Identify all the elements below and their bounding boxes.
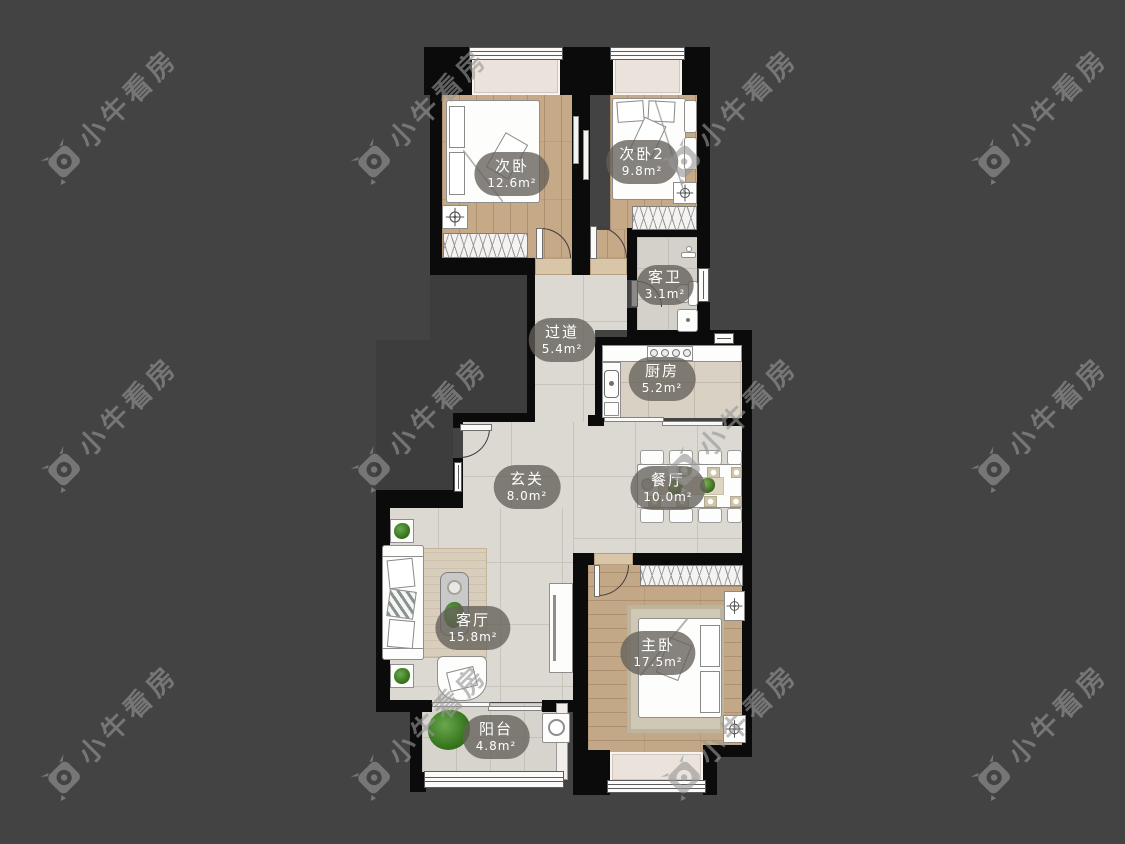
watermark-stamp: 小牛看房 — [36, 649, 194, 807]
kitchen-sliding-door-icon — [604, 417, 664, 422]
dining-chair — [698, 508, 722, 523]
door-threshold — [535, 258, 572, 275]
watermark-text: 小牛看房 — [1004, 660, 1114, 770]
shower-drain-icon — [686, 318, 690, 322]
ac-unit-icon — [724, 591, 745, 621]
bedroom3-door-leaf — [590, 226, 597, 259]
pillow — [700, 625, 720, 667]
niuniu-logo-icon — [38, 443, 92, 497]
sofa-armrest — [382, 545, 424, 557]
watermark-stamp: 小牛看房 — [966, 649, 1124, 807]
watermark-stamp: 小牛看房 — [966, 33, 1124, 191]
room-label-balcony: 阳台4.8m² — [463, 715, 530, 759]
wall — [682, 47, 710, 95]
wall — [573, 553, 588, 795]
niuniu-logo-icon — [348, 751, 402, 805]
bay-window-icon — [469, 47, 563, 60]
wall — [572, 258, 590, 275]
dining-chair — [669, 450, 693, 465]
stove-burner-icon — [650, 349, 658, 357]
bay-window-icon — [610, 47, 685, 60]
door-threshold — [590, 258, 627, 275]
place-setting-icon — [704, 496, 717, 507]
stove-burner-icon — [683, 349, 691, 357]
wall — [560, 47, 613, 95]
faucet-icon — [681, 252, 696, 258]
watermark-stamp: 小牛看房 — [36, 33, 194, 191]
ac-unit-icon — [723, 715, 746, 743]
room-label-dining: 餐厅10.0m² — [630, 466, 705, 510]
wall — [595, 345, 602, 418]
niuniu-logo-icon — [38, 751, 92, 805]
niuniu-logo-icon — [348, 135, 402, 189]
tv-icon — [553, 595, 556, 661]
ac-unit-icon — [442, 205, 468, 229]
watermark-text: 小牛看房 — [694, 44, 804, 154]
wall — [453, 413, 535, 422]
dining-chair — [669, 508, 693, 523]
balcony-window-icon — [424, 771, 564, 788]
watermark-text: 小牛看房 — [1004, 44, 1114, 154]
room-label-bedroom2: 次卧12.6m² — [474, 152, 549, 196]
wall — [430, 95, 442, 275]
balcony-sliding-door-icon — [432, 702, 490, 707]
sofa-armrest — [382, 648, 424, 660]
wall — [723, 418, 742, 426]
room-label-hallway: 过道5.4m² — [529, 318, 596, 362]
dining-chair — [698, 450, 722, 465]
wall — [430, 258, 536, 275]
bay-window-sill — [472, 57, 560, 95]
room-label-guest-bathroom: 客卫3.1m² — [637, 265, 694, 305]
faucet-icon — [686, 246, 692, 252]
balcony-sliding-door-icon — [488, 706, 542, 711]
bathroom-window-icon — [698, 268, 709, 302]
watermark-text: 小牛看房 — [74, 660, 184, 770]
pillow — [700, 671, 720, 713]
wall-niche-slat — [583, 130, 589, 180]
place-setting-icon — [730, 496, 742, 507]
kitchen-cabinet — [604, 402, 619, 416]
niuniu-logo-icon — [968, 443, 1022, 497]
kitchen-sliding-door-icon — [662, 421, 723, 426]
bay-window-sill — [613, 57, 682, 95]
wall — [697, 95, 710, 268]
wall — [627, 308, 637, 330]
room-label-kitchen: 厨房5.2m² — [629, 357, 696, 401]
wall — [742, 337, 752, 553]
place-setting-icon — [731, 467, 742, 478]
washing-machine-door-icon — [548, 719, 565, 736]
niuniu-logo-icon — [968, 751, 1022, 805]
bay-window-icon — [607, 780, 706, 793]
wardrobe — [632, 206, 697, 230]
watermark-text: 小牛看房 — [74, 352, 184, 462]
wardrobe — [640, 565, 743, 586]
watermark-text: 小牛看房 — [74, 44, 184, 154]
stove-burner-icon — [661, 349, 669, 357]
room-label-master: 主卧17.5m² — [620, 631, 695, 675]
room-label-living: 客厅15.8m² — [435, 606, 510, 650]
wardrobe — [443, 233, 528, 258]
master-door-leaf — [594, 565, 600, 597]
bay-window-sill — [610, 752, 703, 782]
watermark-stamp: 小牛看房 — [966, 341, 1124, 499]
wall — [424, 47, 472, 95]
room-label-entry: 玄关8.0m² — [494, 465, 561, 509]
sofa-cushion — [387, 619, 415, 649]
bedroom2-door-leaf — [536, 228, 543, 259]
door-threshold — [594, 553, 633, 565]
dining-chair — [727, 508, 742, 523]
dining-chair — [727, 450, 742, 465]
dining-chair — [640, 450, 664, 465]
room-label-bedroom3: 次卧29.8m² — [606, 140, 678, 184]
wall-niche-slat — [573, 116, 579, 164]
nightstand — [684, 100, 697, 133]
place-setting-icon — [707, 467, 720, 478]
stove-burner-icon — [672, 349, 680, 357]
sofa-cushion — [387, 558, 416, 590]
wall — [633, 553, 742, 565]
nightstand — [684, 137, 697, 170]
niuniu-logo-icon — [968, 135, 1022, 189]
tray-icon — [447, 580, 462, 595]
wall — [376, 490, 463, 508]
striped-pillow — [386, 588, 417, 619]
kitchen-window-icon — [714, 333, 734, 344]
dining-chair — [640, 508, 664, 523]
pillow — [449, 106, 465, 148]
entry-sidelight-icon — [454, 462, 462, 492]
niuniu-logo-icon — [38, 135, 92, 189]
watermark-text: 小牛看房 — [1004, 352, 1114, 462]
pillow — [616, 100, 644, 123]
entry-door-leaf — [460, 424, 492, 431]
floor-plan-canvas: 次卧12.6m² 次卧29.8m² 客卫3.1m² 过道5.4m² 厨房5.2m… — [0, 0, 1125, 844]
watermark-stamp: 小牛看房 — [36, 341, 194, 499]
kitchen-sink-faucet-icon — [609, 381, 614, 386]
void-area — [376, 340, 453, 490]
